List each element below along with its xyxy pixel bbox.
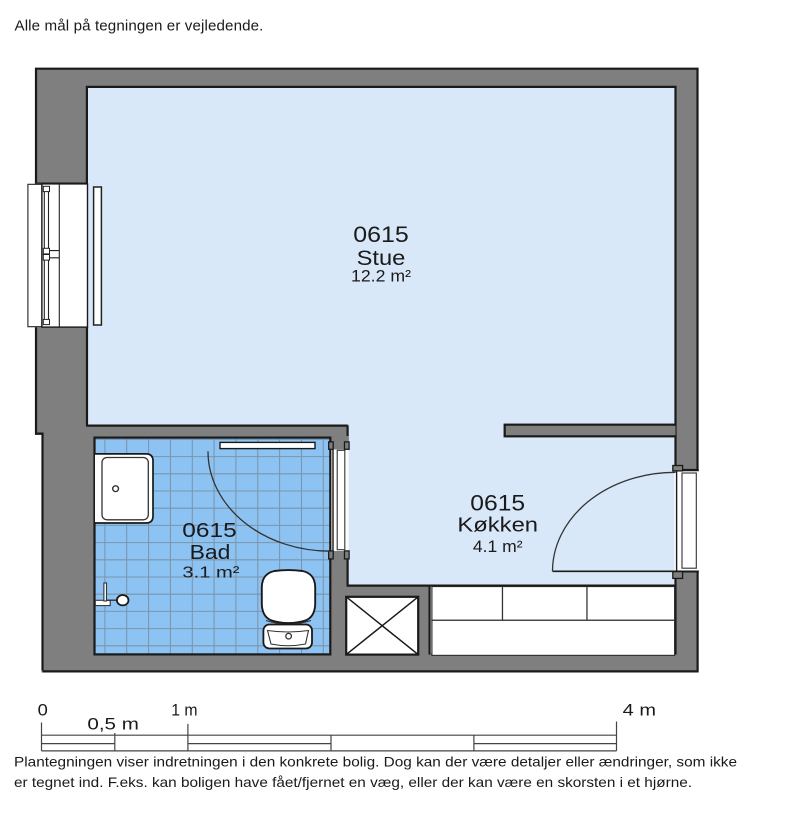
svg-text:Køkken: Køkken (457, 513, 538, 536)
svg-text:12.2 m²: 12.2 m² (351, 267, 411, 286)
svg-text:0615: 0615 (470, 490, 525, 515)
svg-text:4 m: 4 m (623, 701, 656, 720)
svg-text:0615: 0615 (353, 222, 409, 247)
svg-text:1 m: 1 m (171, 701, 197, 720)
svg-text:Plantegningen viser indretning: Plantegningen viser indretningen i den k… (14, 755, 737, 770)
svg-text:Alle mål på tegningen er vejle: Alle mål på tegningen er vejledende. (15, 18, 264, 34)
svg-text:er tegnet ind. F.eks. kan boli: er tegnet ind. F.eks. kan boligen have f… (14, 775, 692, 790)
svg-text:4.1 m²: 4.1 m² (473, 538, 523, 556)
svg-text:Bad: Bad (190, 541, 231, 564)
svg-text:3.1 m²: 3.1 m² (182, 565, 239, 582)
svg-text:0: 0 (38, 701, 48, 720)
svg-text:0615: 0615 (182, 520, 236, 542)
svg-text:0,5 m: 0,5 m (87, 714, 138, 733)
